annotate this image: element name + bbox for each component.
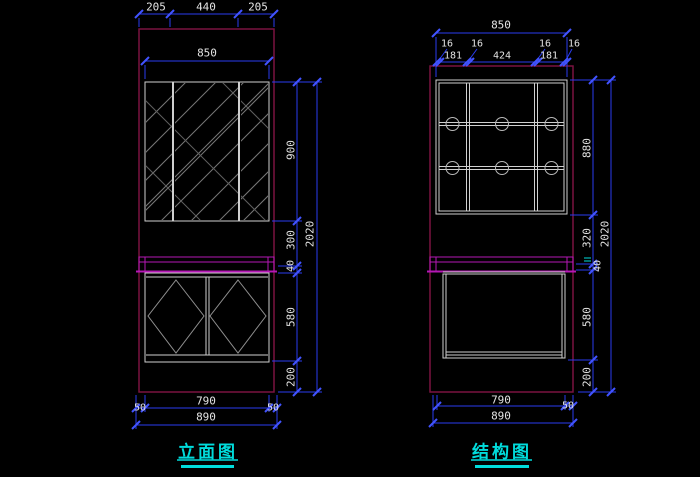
- dim-label: 50: [267, 403, 279, 414]
- dim-label: 40: [593, 260, 604, 272]
- dim-label: 880: [581, 138, 594, 158]
- dim-label: 580: [285, 307, 298, 327]
- dim-label: 580: [581, 307, 594, 327]
- right-base-frame: [443, 272, 565, 358]
- shelf-pin-circles: [446, 118, 558, 175]
- dim-label: 16: [471, 39, 483, 50]
- dim-label: 900: [285, 140, 298, 160]
- dim-label: 300: [285, 230, 298, 250]
- right-structure-box: [436, 80, 567, 214]
- mirror-hatch: [47, 82, 406, 221]
- dim-label: 890: [491, 410, 511, 423]
- left-countertop: [136, 257, 277, 272]
- dim-label: 2020: [304, 221, 317, 248]
- dim-label: 40: [286, 260, 297, 272]
- dim-label: 16: [539, 39, 551, 50]
- dim-label: 181: [540, 51, 558, 62]
- dim-label: 200: [581, 367, 594, 387]
- dim-label: 424: [493, 51, 511, 62]
- right-wall-outline: [430, 66, 573, 392]
- dim-label: 50: [134, 403, 146, 414]
- dim-label: 790: [491, 394, 511, 407]
- dim-label: 205: [248, 1, 268, 14]
- dim-label: 200: [285, 367, 298, 387]
- cad-canvas: 205 440 205 850 900 300 40 2020 580 200 …: [0, 0, 700, 477]
- dim-label: 181: [444, 51, 462, 62]
- dim-label: 790: [196, 395, 216, 408]
- left-view-title: 立面图: [178, 438, 238, 463]
- left-mirror-cabinet: [145, 82, 269, 221]
- cad-linework: [0, 0, 700, 477]
- right-countertop: [427, 257, 576, 272]
- dim-label: 50: [562, 401, 574, 412]
- dim-label: 16: [441, 39, 453, 50]
- left-base-cabinet: [145, 273, 269, 362]
- dim-label: 16: [568, 39, 580, 50]
- dim-label: 850: [197, 47, 217, 60]
- dim-label: 320: [581, 228, 594, 248]
- dim-label: 2020: [599, 221, 612, 248]
- dim-label: 850: [491, 19, 511, 32]
- right-view-title: 结构图: [472, 438, 532, 463]
- dim-label: 440: [196, 1, 216, 14]
- dim-label: 890: [196, 411, 216, 424]
- dim-label: 205: [146, 1, 166, 14]
